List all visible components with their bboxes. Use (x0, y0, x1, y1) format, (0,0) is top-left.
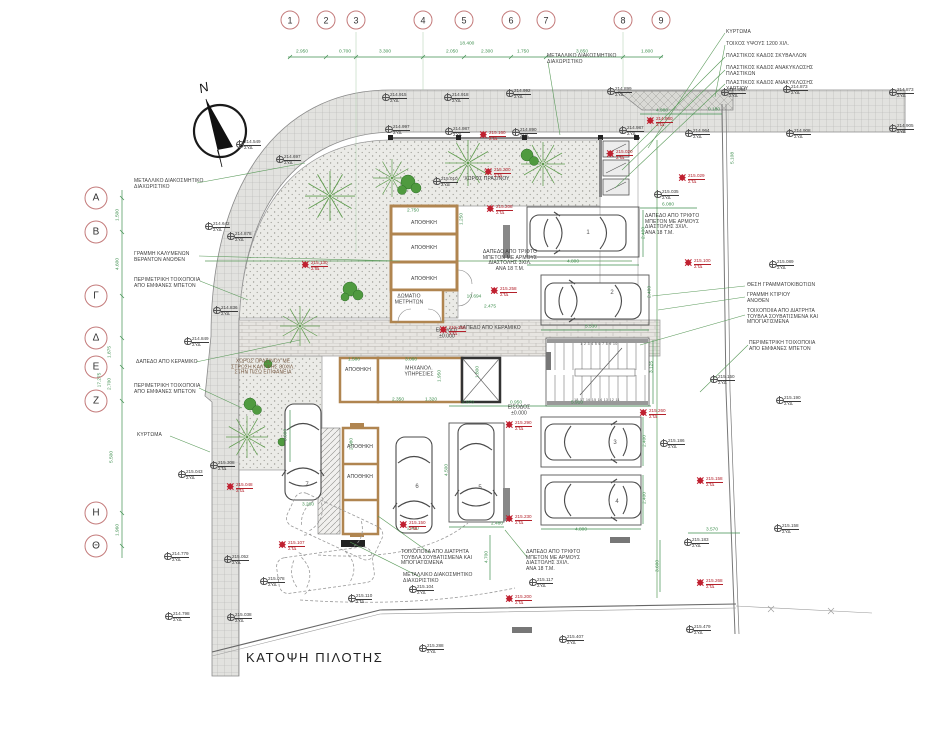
callout-label: ΚΥΡΤΩΜΑ (726, 30, 751, 36)
survey-level-icon (654, 191, 662, 199)
room-label: ΑΠΟΘΗΚΗ (345, 368, 371, 374)
elevation-marker: 215.052ΣΥΔ (232, 555, 249, 566)
callout-label: ΠΛΑΣΤΙΚΟΣ ΚΑΔΟΣ ΑΝΑΚΥΚΛΩΣΗΣ ΠΛΑΣΤΙΚΩΝ (726, 66, 813, 77)
elevation-marker: 214.849ΣΥΔ (192, 337, 209, 348)
survey-level-icon (721, 89, 729, 97)
elevation-marker: 215.200ΣΤΔ (515, 595, 532, 606)
dimension-label: 2.350 (392, 398, 404, 403)
grid-bubble-Α: Α (85, 187, 108, 210)
elevation-marker: 215.020ΣΤΔ (616, 150, 633, 161)
elevation-marker: 215.010ΣΥΔ (441, 177, 458, 188)
parking-space-number: 2 (610, 290, 613, 296)
survey-level-icon (506, 90, 514, 98)
callout-label: ΓΡΑΜΜΗ ΚΤΙΡΙΟΥ ΑΝΩΘΕΝ (747, 293, 790, 304)
survey-level-icon (559, 636, 567, 644)
proposed-level-icon (679, 174, 685, 180)
elevation-marker: 215.183ΣΥΔ (692, 538, 709, 549)
grid-bubble-5: 5 (455, 11, 474, 30)
elevation-marker: 214.987ΣΥΔ (453, 127, 470, 138)
room-label: ΑΠΟΘΗΚΗ (411, 277, 437, 283)
survey-level-icon (224, 556, 232, 564)
proposed-level-icon (697, 579, 703, 585)
elevation-marker: 214.899ΣΥΔ (615, 87, 632, 98)
elevation-marker: 214.905ΣΥΔ (897, 124, 914, 135)
survey-level-icon (184, 338, 192, 346)
room-label: ΧΩΡΟΣ ΠΡΑΣΙΝΟΥ ΜΕ ΣΤΡΩΣΗ ΚΑΛΥΨΗΣ 80ΧΙΛ. … (231, 360, 295, 377)
survey-level-icon (178, 471, 186, 479)
dimension-label: 4.700 (485, 551, 490, 563)
callout-label: ΤΟΙΧΟΠΟΙΙΑ ΑΠΟ ΔΙΑΤΡΗΤΑ ΤΟΥΒΛΑ ΣΟΥΒΑΤΙΣΜ… (747, 309, 818, 326)
elevation-marker: 215.200ΣΤΔ (494, 168, 511, 179)
grid-dimension: 1.500 (116, 209, 121, 221)
dimension-label: 2.480 (491, 522, 503, 527)
dimension-label: 2.750 (407, 209, 419, 214)
dimension-label: 1.950 (438, 370, 443, 382)
proposed-level-icon (485, 168, 491, 174)
grid-bubble-Γ: Γ (85, 285, 108, 308)
survey-level-icon (529, 579, 537, 587)
survey-level-icon (227, 233, 235, 241)
elevation-marker: 214.980ΣΤΔ (656, 117, 673, 128)
elevation-marker: 215.078ΣΥΔ (268, 577, 285, 588)
callout-label: ΔΑΠΕΔΟ ΑΠΟ ΤΡΙΦΤΟ ΜΠΕΤΟΝ ΜΕ ΑΡΜΟΥΣ ΔΙΑΣΤ… (645, 214, 699, 236)
survey-level-icon (276, 156, 284, 164)
proposed-level-icon (302, 261, 308, 267)
room-label: ΑΠΟΘΗΚΗ (411, 246, 437, 252)
grid-dimension: 1.875 (108, 346, 113, 358)
survey-level-icon (889, 125, 897, 133)
elevation-marker: 214.987ΣΥΔ (627, 126, 644, 137)
dimension-label: 2.400 (643, 435, 648, 447)
grid-bubble-4: 4 (414, 11, 433, 30)
survey-level-icon (227, 614, 235, 622)
elevation-marker: 215.190ΣΥΔ (784, 396, 801, 407)
callout-label: ΚΥΡΤΩΜΑ (137, 433, 162, 439)
proposed-level-icon (607, 150, 613, 156)
dimension-label: 0.180 (708, 108, 720, 113)
dimension-label: 6.080 (662, 203, 674, 208)
callout-label: ΠΛΑΣΤΙΚΟΣ ΚΑΔΟΣ ΣΚΥΒΑΛΛΩΝ (726, 54, 807, 60)
proposed-level-icon (480, 131, 486, 137)
survey-level-icon (236, 141, 244, 149)
grid-dimension: 5.500 (110, 451, 115, 463)
callout-label: ΓΡΑΜΜΗ ΚΑΛΥΜΕΝΩΝ ΒΕΡΑΝΤΩΝ ΑΝΩΘΕΝ (134, 252, 189, 263)
survey-level-icon (889, 89, 897, 97)
dimension-label: 3.060 (405, 358, 417, 363)
dimension-label: 4.800 (575, 528, 587, 533)
dimension-label: 5.108 (731, 152, 736, 164)
proposed-level-icon (697, 477, 703, 483)
elevation-marker: 214.890ΣΥΔ (520, 128, 537, 139)
room-label: ΔΩΜΑΤΙΟ ΜΕΤΡΗΤΩΝ (395, 294, 424, 305)
dimension-label: 1.320 (425, 398, 437, 403)
survey-level-icon (165, 613, 173, 621)
elevation-marker: 215.038ΣΥΔ (235, 613, 252, 624)
grid-dimension: 3.300 (379, 50, 391, 55)
survey-level-icon (774, 525, 782, 533)
elevation-marker: 214.549ΣΥΔ (244, 140, 261, 151)
survey-level-icon (786, 130, 794, 138)
grid-dimension: 2.050 (446, 50, 458, 55)
elevation-marker: 215.104ΣΥΔ (417, 585, 434, 596)
dimension-label: 5.530 (585, 325, 597, 330)
dimension-label: 3.125 (650, 361, 655, 373)
callout-label: ΤΟΙΧΟΣ ΥΨΟΥΣ 1200 ΧΙΛ. (726, 42, 789, 48)
elevation-marker: 215.258ΣΤΔ (500, 287, 517, 298)
dimension-label: 1.580 (348, 358, 360, 363)
elevation-marker: 215.186ΣΥΔ (668, 439, 685, 450)
elevation-marker: 215.107ΣΤΔ (288, 541, 305, 552)
grid-bubble-9: 9 (652, 11, 671, 30)
survey-level-icon (783, 86, 791, 94)
survey-level-icon (444, 94, 452, 102)
room-label: ΔΑΠΕΔΟ ΑΠΟ ΚΕΡΑΜΙΚΟ (459, 326, 521, 332)
survey-level-icon (348, 595, 356, 603)
survey-level-icon (686, 626, 694, 634)
room-label: ΜΗΧΑΝΟΛ. ΥΠΗΡΕΣΙΕΣ (404, 366, 433, 377)
elevation-marker: 215.250ΣΤΔ (449, 326, 466, 337)
elevation-marker: 215.268ΣΤΔ (706, 579, 723, 590)
grid-bubble-8: 8 (614, 11, 633, 30)
grid-bubble-7: 7 (537, 11, 556, 30)
callout-label: ΜΕΤΑΛΛΙΚΟ ΔΙΑΚΟΣΜΗΤΙΚΟ ΔΙΑΧΩΡΙΣΤΙΚΟ (134, 179, 204, 190)
grid-dimension: 2.700 (108, 378, 113, 390)
parking-space-number: 6 (415, 484, 418, 490)
elevation-marker: 215.043ΣΥΔ (186, 470, 203, 481)
elevation-marker: 214.915ΣΥΔ (390, 93, 407, 104)
grid-dimension: 4.600 (116, 258, 121, 270)
grid-bubble-Β: Β (85, 221, 108, 244)
survey-level-icon (433, 178, 441, 186)
survey-level-icon (685, 130, 693, 138)
site-plan-canvas: ΚΑΤΟΨΗ ΠΙΛΟΤΗΣ N 123456789ΑΒΓΔΕΖΗΘ2.9500… (0, 0, 946, 733)
survey-level-icon (660, 440, 668, 448)
dimension-label: 4.980 (656, 109, 668, 114)
dimension-label: 4.800 (567, 260, 579, 265)
elevation-marker: 214.908ΣΥΔ (794, 129, 811, 140)
elevation-marker: 215.048ΣΤΔ (236, 483, 253, 494)
stair-tread-numbers: 18 17 16 15 14 13 12 11 (574, 398, 620, 402)
proposed-level-icon (506, 595, 512, 601)
grid-bubble-Θ: Θ (85, 535, 108, 558)
survey-level-icon (164, 553, 172, 561)
elevation-marker: 214.873ΣΥΔ (897, 88, 914, 99)
elevation-marker: 215.479ΣΥΔ (694, 625, 711, 636)
elevation-marker: 214.983ΣΥΔ (729, 88, 746, 99)
elevation-marker: 214.997ΣΥΔ (393, 125, 410, 136)
parking-space-number: 7 (305, 482, 308, 488)
dimension-label: 0.950 (510, 401, 522, 406)
grid-dimension: 1.800 (641, 50, 653, 55)
callout-label: ΠΕΡΙΜΕΤΡΙΚΗ ΤΟΙΧΟΠΟΙΙΑ ΑΠΟ ΕΜΦΑΝΕΣ ΜΠΕΤΟ… (749, 341, 815, 352)
grid-dimension: 2.950 (296, 50, 308, 55)
north-label: N (197, 79, 211, 96)
elevation-marker: 215.308ΣΤΔ (218, 461, 235, 472)
elevation-marker: 215.288ΣΥΔ (427, 644, 444, 655)
room-label: ΕΙΣΟΔΟΣ ±0.000 (508, 405, 531, 416)
room-label: ΔΑΠΕΔΟ ΑΠΟ ΤΡΙΦΤΟ ΜΠΕΤΟΝ ΜΕ ΑΡΜΟΥΣ ΔΙΑΣΤ… (483, 250, 537, 272)
elevation-marker: 215.100ΣΤΔ (694, 259, 711, 270)
proposed-level-icon (440, 326, 446, 332)
dimension-label: 2.400 (648, 286, 653, 298)
proposed-level-icon (640, 409, 646, 415)
elevation-marker: 214.836ΣΥΔ (221, 306, 238, 317)
proposed-level-icon (506, 421, 512, 427)
proposed-level-icon (400, 521, 406, 527)
grid-bubble-Η: Η (85, 502, 108, 525)
dimension-label: 3.570 (706, 528, 718, 533)
survey-level-icon (382, 94, 390, 102)
survey-level-icon (213, 307, 221, 315)
elevation-marker: 215.150ΣΤΔ (409, 521, 426, 532)
proposed-level-icon (279, 541, 285, 547)
elevation-marker: 214.697ΣΥΔ (284, 155, 301, 166)
dimension-label: 3.280 (302, 503, 314, 508)
elevation-marker: 214.878ΣΥΔ (235, 232, 252, 243)
dimension-label: 2.475 (484, 305, 496, 310)
elevation-marker: 215.160ΣΤΔ (489, 131, 506, 142)
callout-label: ΜΕΤΑΛΛΙΚΟ ΔΙΑΚΟΣΜΗΤΙΚΟ ΔΙΑΧΩΡΙΣΤΙΚΟ (547, 54, 617, 65)
callout-label: ΔΑΠΕΔΟ ΑΠΟ ΚΕΡΑΜΙΚΟ (136, 360, 198, 366)
dimension-label: 2.080 (350, 438, 355, 450)
grid-bubble-Ε: Ε (85, 356, 108, 379)
elevation-marker: 215.130ΣΤΔ (311, 261, 328, 272)
room-label: ΑΠΟΘΗΚΗ (411, 221, 437, 227)
elevation-marker: 214.798ΣΥΔ (173, 612, 190, 623)
callout-label: ΔΑΠΕΔΟ ΑΠΟ ΤΡΙΦΤΟ ΜΠΕΤΟΝ ΜΕ ΑΡΜΟΥΣ ΔΙΑΣΤ… (526, 550, 580, 572)
callout-label: ΜΕΤΑΛΛΙΚΟ ΔΙΑΚΟΣΜΗΤΙΚΟ ΔΙΑΧΩΡΙΣΤΙΚΟ (403, 573, 473, 584)
callout-label: ΤΟΙΧΟΠΟΙΙΑ ΑΠΟ ΔΙΑΤΡΗΤΑ ΤΟΥΒΛΑ ΣΟΥΒΑΤΙΣΜ… (401, 550, 472, 567)
grid-bubble-Δ: Δ (85, 327, 108, 350)
grid-dimension: 1.960 (116, 524, 121, 536)
grid-dimension: 0.700 (339, 50, 351, 55)
parking-space-number: 4 (615, 499, 618, 505)
grid-bubble-Ζ: Ζ (85, 390, 108, 413)
parking-space-number: 3 (613, 440, 616, 446)
grid-bubble-3: 3 (347, 11, 366, 30)
proposed-level-icon (506, 515, 512, 521)
elevation-marker: 215.230ΣΤΔ (515, 515, 532, 526)
survey-level-icon (607, 88, 615, 96)
elevation-marker: 214.873ΣΥΔ (791, 85, 808, 96)
parking-space-number: 5 (478, 485, 481, 491)
elevation-marker: 214.918ΣΥΔ (452, 93, 469, 104)
survey-level-icon (684, 539, 692, 547)
elevation-marker: 215.110ΣΤΔ (356, 594, 372, 605)
proposed-level-icon (685, 259, 691, 265)
grid-dimension: 2.300 (481, 50, 493, 55)
room-label: ΑΠΟΘΗΚΗ (347, 475, 373, 481)
proposed-level-icon (491, 287, 497, 293)
callout-label: ΘΕΣΗ ΓΡΑΜΜΑΤΟΚΙΒΩΤΙΩΝ (747, 283, 815, 289)
survey-level-icon (385, 126, 393, 134)
survey-level-icon (210, 462, 218, 470)
drawing-title: ΚΑΤΟΨΗ ΠΙΛΟΤΗΣ (246, 650, 383, 665)
elevation-marker: 215.260ΣΤΔ (649, 409, 666, 420)
grid-total-dimension: 18.400 (460, 42, 475, 47)
survey-level-icon (710, 376, 718, 384)
dimension-label: 1.800 (476, 366, 481, 378)
elevation-marker: 214.779ΣΥΔ (172, 552, 189, 563)
proposed-level-icon (227, 483, 233, 489)
dimension-label: 10.694 (467, 295, 482, 300)
survey-level-icon (619, 127, 627, 135)
survey-level-icon (445, 128, 453, 136)
elevation-marker: 215.150ΣΥΔ (718, 375, 735, 386)
elevation-marker: 214.992ΣΥΔ (514, 89, 531, 100)
dimension-label: 4.500 (445, 464, 450, 476)
survey-level-icon (260, 578, 268, 586)
grid-bubble-2: 2 (317, 11, 336, 30)
survey-level-icon (776, 397, 784, 405)
callout-label: ΠΕΡΙΜΕΤΡΙΚΗ ΤΟΙΧΟΠΟΙΙΑ ΑΠΟ ΕΜΦΑΝΕΣ ΜΠΕΤΟ… (134, 278, 200, 289)
dimension-label: 2.400 (642, 227, 647, 239)
survey-level-icon (419, 645, 427, 653)
elevation-marker: 215.290ΣΤΔ (515, 421, 532, 432)
survey-level-icon (409, 586, 417, 594)
elevation-marker: 215.158ΣΤΔ (706, 477, 723, 488)
proposed-level-icon (647, 117, 653, 123)
proposed-level-icon (487, 205, 493, 211)
grid-bubble-6: 6 (502, 11, 521, 30)
dimension-label: 3.600 (656, 560, 661, 572)
callout-label: ΠΕΡΙΜΕΤΡΙΚΗ ΤΟΙΧΟΠΟΙΙΑ ΑΠΟ ΕΜΦΑΝΕΣ ΜΠΕΤΟ… (134, 384, 200, 395)
elevation-marker: 215.117ΣΥΔ (537, 578, 553, 589)
survey-level-icon (205, 223, 213, 231)
dimension-label: 2.400 (643, 492, 648, 504)
survey-level-icon (769, 261, 777, 269)
elevation-marker: 215.407ΣΥΔ (567, 635, 584, 646)
elevation-marker: 215.158ΣΥΔ (782, 524, 799, 535)
elevation-marker: 214.642ΣΥΔ (213, 222, 230, 233)
elevation-marker: 214.964ΣΥΔ (693, 129, 710, 140)
annotation-overlay: ΚΑΤΟΨΗ ΠΙΛΟΤΗΣ N 123456789ΑΒΓΔΕΖΗΘ2.9500… (0, 0, 946, 733)
elevation-marker: 215.035ΣΥΔ (662, 190, 679, 201)
grid-total-dimension: 17.275 (98, 373, 103, 388)
grid-bubble-1: 1 (281, 11, 300, 30)
dimension-label: 1.250 (460, 213, 465, 225)
dimension-label: 3.600 (284, 429, 289, 441)
survey-level-icon (512, 129, 520, 137)
elevation-marker: 215.208ΣΤΔ (496, 205, 513, 216)
dimension-label: 2.970 (462, 401, 474, 406)
elevation-marker: 215.029ΣΤΔ (688, 174, 705, 185)
parking-space-number: 1 (586, 230, 589, 236)
stair-tread-numbers: 1 2 3 4 5 6 7 8 9 10 (580, 342, 617, 346)
elevation-marker: 215.089ΣΥΔ (777, 260, 794, 271)
grid-dimension: 1.750 (517, 50, 529, 55)
